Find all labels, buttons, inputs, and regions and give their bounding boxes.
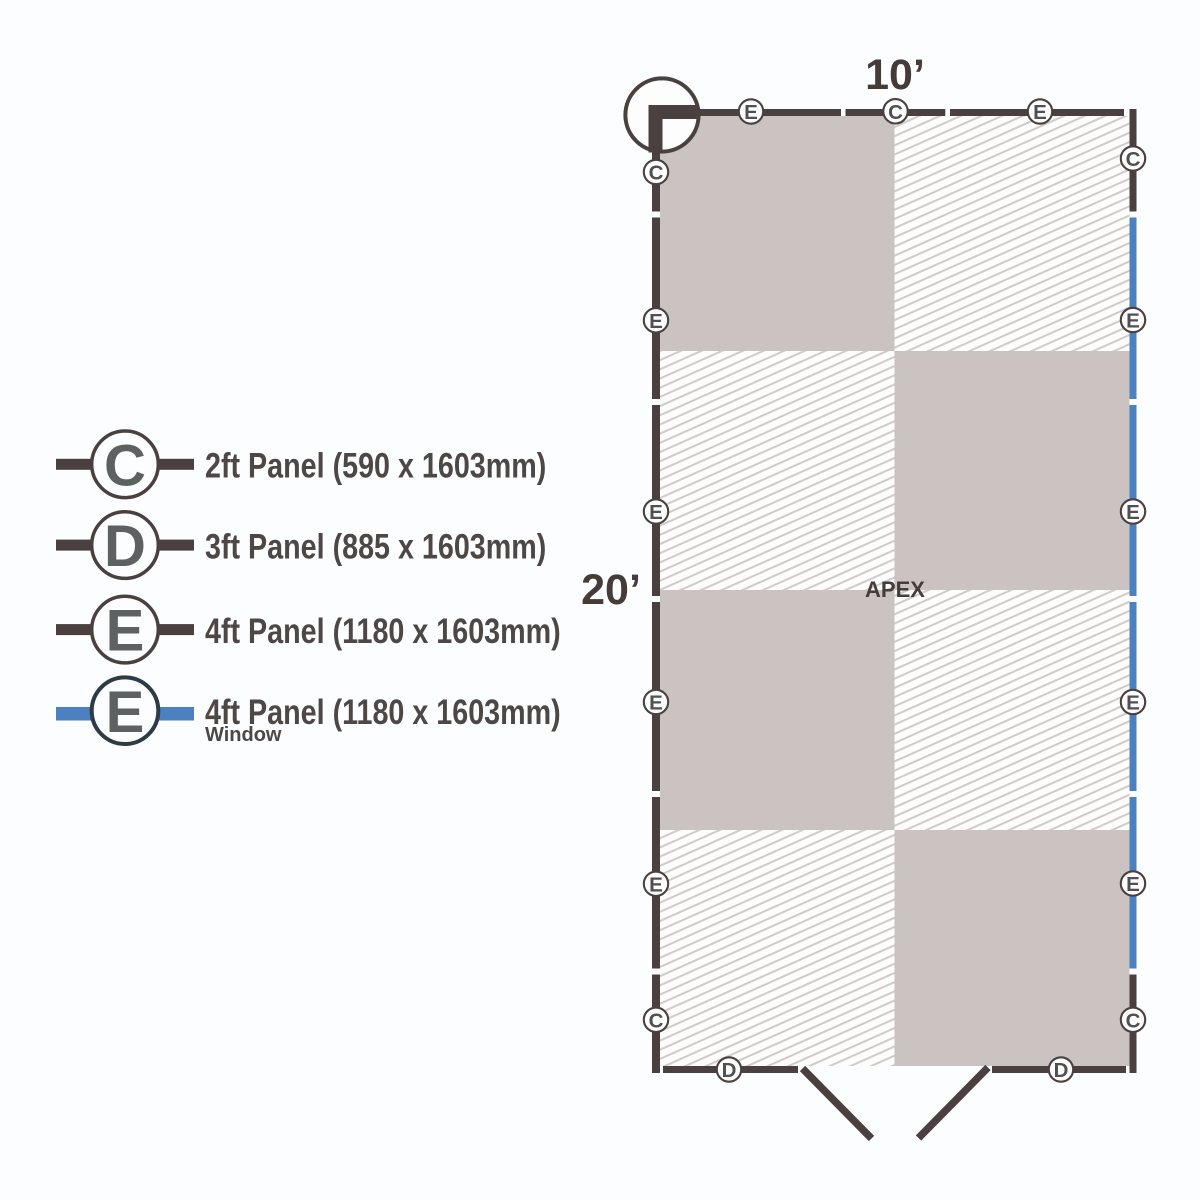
svg-text:D: D — [722, 1059, 737, 1082]
svg-text:APEX: APEX — [865, 577, 925, 602]
svg-text:C: C — [104, 433, 146, 498]
svg-text:E: E — [1126, 692, 1140, 715]
svg-text:C: C — [1126, 1009, 1141, 1032]
svg-text:10’: 10’ — [865, 51, 925, 99]
svg-text:E: E — [649, 692, 663, 715]
svg-text:E: E — [106, 599, 145, 664]
svg-text:C: C — [1126, 148, 1141, 171]
svg-text:D: D — [104, 514, 146, 579]
svg-text:2ft Panel (590 x 1603mm): 2ft Panel (590 x 1603mm) — [205, 446, 546, 485]
svg-text:4ft Panel (1180 x 1603mm): 4ft Panel (1180 x 1603mm) — [205, 611, 561, 650]
svg-text:20’: 20’ — [581, 566, 641, 614]
svg-text:E: E — [106, 680, 145, 745]
svg-text:3ft Panel (885 x 1603mm): 3ft Panel (885 x 1603mm) — [205, 527, 546, 566]
svg-text:E: E — [1126, 873, 1140, 896]
svg-text:E: E — [1126, 310, 1140, 333]
svg-text:C: C — [888, 101, 903, 124]
svg-text:E: E — [744, 101, 758, 124]
svg-text:E: E — [649, 310, 663, 333]
svg-text:E: E — [649, 873, 663, 896]
svg-text:E: E — [649, 501, 663, 524]
svg-text:Window: Window — [205, 724, 282, 746]
svg-text:D: D — [1054, 1059, 1069, 1082]
svg-text:E: E — [1126, 501, 1140, 524]
svg-text:C: C — [649, 1009, 664, 1032]
svg-text:C: C — [649, 162, 664, 185]
svg-text:E: E — [1033, 101, 1047, 124]
